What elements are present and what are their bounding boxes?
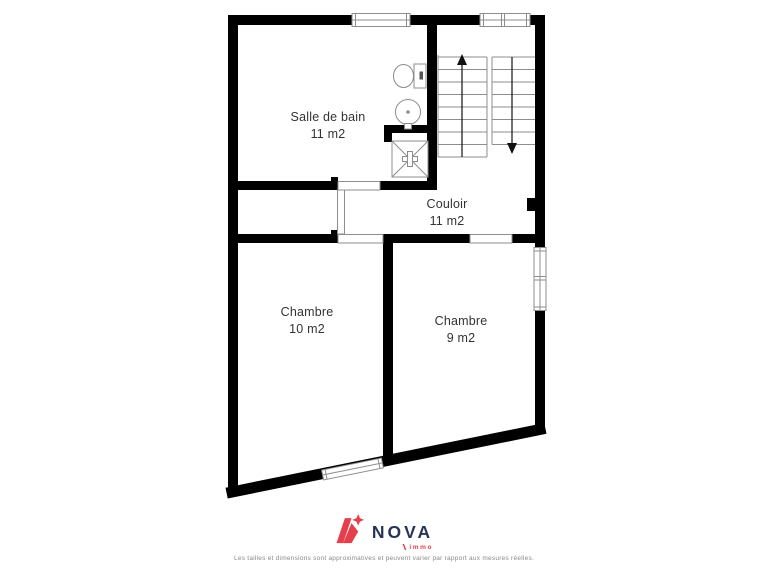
room-label-chambre-10: Chambre 10 m2 xyxy=(281,304,334,339)
stairs-down-arrow-icon xyxy=(507,57,517,154)
staircase xyxy=(438,54,535,157)
room-name: Chambre xyxy=(281,304,334,321)
room-name: Couloir xyxy=(427,196,468,213)
closet-opening xyxy=(338,190,345,234)
sink-icon xyxy=(396,100,421,130)
nova-logo-text: NOVA immo xyxy=(372,513,433,551)
brand-subtitle: immo xyxy=(401,544,433,551)
window-icon xyxy=(534,248,546,311)
nova-n-star-icon xyxy=(335,513,365,545)
shower-icon xyxy=(392,141,428,177)
toilet-icon xyxy=(394,64,427,88)
room-area: 11 m2 xyxy=(427,213,468,230)
floor-plan-drawing xyxy=(0,0,768,576)
room-label-salle-de-bain: Salle de bain 11 m2 xyxy=(291,109,366,144)
nova-logo: NOVA immo xyxy=(335,513,433,551)
door-opening xyxy=(470,235,512,244)
window-icon xyxy=(322,458,384,480)
brand-sub-label: immo xyxy=(409,544,433,551)
window-icon xyxy=(480,14,530,27)
room-name: Salle de bain xyxy=(291,109,366,126)
room-label-chambre-9: Chambre 9 m2 xyxy=(435,313,488,348)
room-area: 11 m2 xyxy=(291,126,366,143)
disclaimer-text: Les tailles et dimensions sont approxima… xyxy=(0,555,768,562)
room-name: Chambre xyxy=(435,313,488,330)
door-openings xyxy=(338,182,513,244)
room-area: 10 m2 xyxy=(281,321,334,338)
room-label-couloir: Couloir 11 m2 xyxy=(427,196,468,231)
window-icon xyxy=(352,14,410,27)
brand-name: NOVA xyxy=(372,524,433,542)
door-opening xyxy=(338,235,383,244)
immo-slash-icon xyxy=(401,544,407,550)
room-area: 9 m2 xyxy=(435,330,488,347)
floor-plan-page: Salle de bain 11 m2 Couloir 11 m2 Chambr… xyxy=(0,0,768,576)
door-opening xyxy=(338,182,380,191)
wall-stub xyxy=(527,198,535,211)
